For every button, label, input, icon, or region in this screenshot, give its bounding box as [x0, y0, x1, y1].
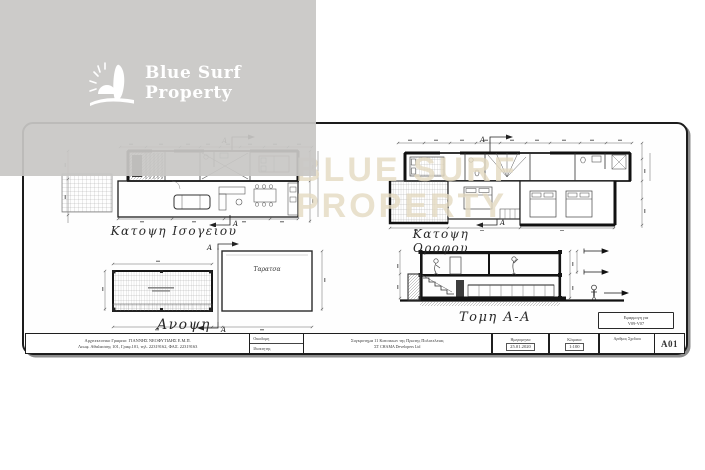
- sheet-number-label-cell: Αριθμος Σχεδιου: [598, 334, 654, 353]
- field-labels-cell: Οικοδομη Ιδιοκτητης: [249, 334, 303, 353]
- project-owner: ΣΤ CHAMA Developers Ltd: [374, 344, 420, 350]
- watermark-line1: BLUE SURF: [296, 152, 518, 188]
- section-label: Τομη Α-Α: [448, 310, 542, 325]
- watermark: BLUE SURF PROPERTY: [296, 152, 518, 224]
- scale-value: 1:100: [565, 343, 583, 351]
- roof-plan-drawing: A A Ταρατσα: [100, 240, 350, 338]
- owner-label: Ιδιοκτητης: [250, 343, 303, 353]
- date-cell: Ημερομηνια 25.01.2020: [491, 334, 549, 353]
- architect-office-line2: Λεωφ. Αθαλασσης 101, Γραφ.101, τηλ. 2231…: [78, 344, 197, 350]
- title-block: Αρχιτεκτονικο Γραφειο: ΓΙΑΝΝΗΣ ΝΕΟΦΥΤΙΔΗ…: [25, 333, 685, 354]
- sheet-number-label: Αριθμος Σχεδιου: [614, 336, 641, 341]
- brand-name-line2: Property: [145, 83, 241, 103]
- date-value: 25.01.2020: [506, 343, 535, 351]
- building-label: Οικοδομη: [250, 334, 303, 343]
- brand-logo: Blue Surf Property: [88, 58, 241, 108]
- section-marker-a-top: A: [479, 136, 485, 144]
- watermark-line2: PROPERTY: [296, 188, 518, 224]
- scale-label: Κλιμακα: [567, 337, 581, 342]
- project-cell: Συγκροτημα 11 Κατοικιων της Πρωτης Πολυτ…: [303, 334, 490, 353]
- scale-cell: Κλιμακα 1:100: [548, 334, 598, 353]
- revision-line2: V09-V07: [628, 321, 644, 327]
- brand-name-line1: Blue Surf: [145, 63, 241, 83]
- sheet-code: A01: [661, 339, 678, 349]
- date-label: Ημερομηνια: [511, 337, 531, 342]
- section-marker-a-top: A: [206, 244, 212, 252]
- surfboard-sun-icon: [88, 58, 136, 108]
- revision-reference-box: Εφαρμογη για V09-V07: [598, 312, 674, 329]
- architect-office-cell: Αρχιτεκτονικο Γραφειο: ΓΙΑΝΝΗΣ ΝΕΟΦΥΤΙΔΗ…: [26, 334, 249, 353]
- sheet-code-cell: A01: [654, 334, 684, 353]
- roof-plan-label: Ανοψη: [146, 317, 222, 333]
- upper-floor-plan-label: Κατοψη Οροφου: [386, 227, 496, 255]
- ground-floor-plan-label: Κατοψη Ισογειου: [104, 224, 244, 238]
- terrace-label: Ταρατσα: [253, 266, 280, 273]
